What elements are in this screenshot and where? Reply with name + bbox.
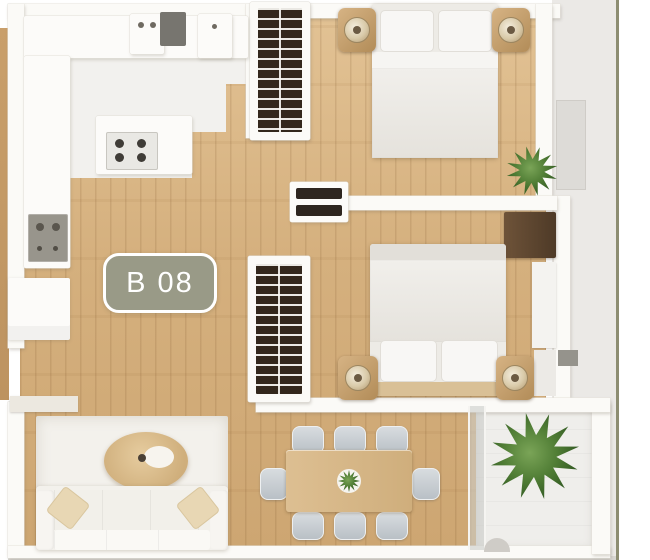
kitchen-appliance-dark bbox=[160, 12, 186, 46]
pillow bbox=[441, 340, 498, 382]
builtin-shelf-lower bbox=[534, 350, 556, 396]
cooktop bbox=[106, 132, 158, 170]
duvet bbox=[370, 260, 506, 342]
kitchen-oven bbox=[198, 14, 232, 58]
table-lamp-icon bbox=[502, 365, 528, 391]
coffee-table bbox=[104, 432, 188, 490]
unit-badge[interactable]: B 08 bbox=[103, 253, 217, 313]
page-edge-rule bbox=[616, 0, 619, 560]
bed-bedroom1 bbox=[372, 4, 498, 158]
wardrobe-hall-divider bbox=[279, 8, 281, 132]
burner-icon bbox=[115, 139, 124, 148]
decor-icon bbox=[138, 454, 146, 462]
dining-table bbox=[286, 450, 412, 512]
headboard bbox=[370, 382, 506, 396]
pillow bbox=[438, 10, 492, 52]
wall-right-balcony bbox=[592, 402, 610, 554]
sofa-backrest bbox=[54, 530, 210, 550]
dining-chair bbox=[376, 512, 408, 540]
pillow bbox=[380, 10, 434, 52]
sink-basin-icon bbox=[52, 223, 60, 231]
duvet bbox=[372, 68, 498, 158]
pillow bbox=[380, 340, 437, 382]
wall-bedroom-divider bbox=[345, 196, 557, 210]
sofa-armrest bbox=[36, 490, 54, 550]
nightstand bbox=[338, 8, 376, 52]
wall-right-bedroom2 bbox=[554, 196, 570, 402]
dining-chair bbox=[334, 512, 366, 540]
sink-basin-icon bbox=[36, 223, 44, 231]
burner-icon bbox=[137, 139, 146, 148]
bed-bedroom2 bbox=[370, 244, 506, 396]
dining-chair bbox=[260, 468, 288, 500]
sofa-armrest bbox=[210, 490, 228, 550]
builtin-shelf bbox=[532, 262, 556, 348]
kitchen-sink bbox=[28, 214, 68, 262]
wardrobe-bedroom2-divider bbox=[278, 264, 280, 394]
sink-knob-icon bbox=[37, 246, 42, 251]
nightstand bbox=[492, 8, 530, 52]
tv-shelf-icon bbox=[296, 205, 342, 216]
dining-chair bbox=[412, 468, 440, 500]
nightstand bbox=[496, 356, 534, 400]
table-lamp-icon bbox=[345, 365, 371, 391]
blanket-fold bbox=[372, 52, 498, 68]
burner-icon bbox=[137, 153, 146, 162]
floor-plan: B 08 bbox=[0, 0, 650, 560]
sofa bbox=[36, 486, 228, 550]
unit-badge-label: B 08 bbox=[126, 267, 194, 300]
dresser-bedroom2 bbox=[504, 212, 556, 258]
wall-left-lower bbox=[8, 402, 24, 554]
tray-icon bbox=[144, 446, 174, 468]
faucet-icon bbox=[138, 22, 144, 28]
table-lamp-icon bbox=[498, 17, 524, 43]
media-console bbox=[290, 182, 348, 222]
burner-icon bbox=[115, 153, 124, 162]
exterior-vent bbox=[558, 350, 578, 366]
tv-screen-icon bbox=[296, 188, 342, 199]
kitchen-sink-cabinet bbox=[130, 14, 164, 54]
kitchen-cabinet-end bbox=[8, 278, 70, 340]
faucet-icon bbox=[150, 22, 156, 28]
exterior-ledge bbox=[556, 100, 586, 190]
table-lamp-icon bbox=[344, 17, 370, 43]
oven-knob-icon bbox=[212, 24, 217, 29]
balcony-glass-door bbox=[468, 406, 486, 550]
dining-chair bbox=[292, 512, 324, 540]
sink-knob-icon bbox=[53, 246, 58, 251]
nightstand bbox=[338, 356, 378, 400]
entry-console bbox=[10, 396, 78, 412]
